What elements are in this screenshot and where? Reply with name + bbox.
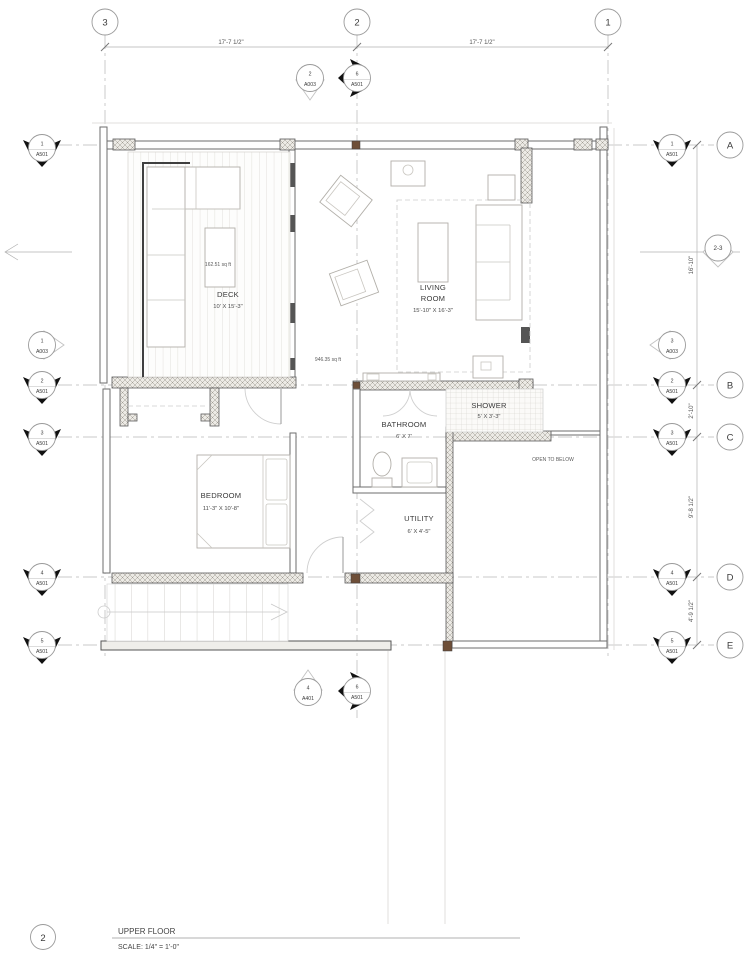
svg-text:2: 2 — [671, 379, 674, 385]
svg-text:3: 3 — [41, 431, 44, 437]
elevation-marker: 2A003 — [296, 65, 324, 101]
grid-bubble-1: 1 — [595, 9, 621, 35]
room-living: LIVING ROOM 15'-10" X 16'-3" 946.35 sq f… — [315, 161, 530, 378]
svg-text:A501: A501 — [666, 389, 678, 395]
toilet — [372, 452, 392, 487]
stove — [473, 356, 503, 378]
wall-bathroom-north — [353, 381, 533, 390]
deck-area-tag: 162.51 sq ft — [205, 262, 232, 268]
room-deck: 162.51 sq ft DECK 10' X 15'-3" — [128, 152, 290, 377]
bathroom-size: 6' X 7' — [396, 434, 412, 440]
deck-label: DECK — [217, 290, 239, 299]
shower-label: SHOWER — [471, 401, 507, 410]
title-block: 2 UPPER FLOOR SCALE: 1/4" = 1'-0" — [31, 925, 521, 952]
svg-text:A: A — [727, 141, 734, 152]
svg-text:6: 6 — [356, 685, 359, 691]
section-marker: 3A501 — [653, 424, 691, 457]
sheet-title: UPPER FLOOR — [118, 927, 176, 936]
floor-plan-drawing: 17'-7 1/2" 17'-7 1/2" 16'-10" 2'-10" 9'-… — [0, 0, 750, 957]
sofa — [476, 205, 522, 320]
bifold-door — [360, 499, 374, 543]
svg-text:5: 5 — [41, 639, 44, 645]
grid-bubble-2: 2 — [344, 9, 370, 35]
dim-right-bc: 2'-10" — [689, 403, 695, 418]
wall-bedroom-south — [112, 573, 303, 583]
console-table — [391, 161, 425, 186]
section-marker: 1A501 — [653, 135, 691, 168]
svg-text:D: D — [727, 573, 734, 584]
svg-text:A501: A501 — [36, 649, 48, 655]
svg-text:A501: A501 — [666, 152, 678, 158]
svg-text:4: 4 — [41, 571, 44, 577]
coffee-table — [418, 223, 448, 282]
svg-text:1: 1 — [605, 18, 610, 29]
armchair — [329, 260, 378, 306]
room-bedroom: BEDROOM 11'-3" X 10'-8" — [128, 389, 343, 573]
bedroom-label: BEDROOM — [201, 491, 242, 500]
grid-bubble-E: E — [717, 632, 743, 658]
wood-post — [352, 141, 360, 149]
detail-number: 2 — [40, 933, 45, 944]
svg-text:A501: A501 — [351, 82, 363, 88]
living-label-1: LIVING — [420, 283, 446, 292]
grid-bubble-3: 3 — [92, 9, 118, 35]
svg-text:A501: A501 — [36, 581, 48, 587]
grid-bubble-A: A — [717, 132, 743, 158]
section-marker: 4A501 — [23, 564, 61, 597]
stairs — [98, 584, 288, 641]
room-utility: UTILITY 6' X 4'-5" — [360, 499, 434, 543]
svg-text:1: 1 — [41, 339, 44, 345]
svg-text:A401: A401 — [302, 696, 314, 702]
grid-bubble-B: B — [717, 372, 743, 398]
svg-text:1: 1 — [671, 142, 674, 148]
wall-stair-south — [101, 641, 391, 650]
svg-text:A501: A501 — [36, 389, 48, 395]
side-table — [488, 175, 515, 200]
dim-right-cd: 9'-8 1/2" — [689, 496, 695, 518]
svg-text:4: 4 — [307, 686, 310, 692]
room-shower: SHOWER 5' X 3'-3" — [446, 389, 543, 432]
elevation-marker: 3A003 — [650, 331, 686, 359]
elevation-marker: 4A401 — [294, 670, 322, 706]
wall-bedroom-west — [103, 389, 110, 573]
svg-text:1: 1 — [41, 142, 44, 148]
section-marker: 5A501 — [23, 632, 61, 665]
svg-text:B: B — [727, 381, 733, 392]
utility-size: 6' X 4'-5" — [408, 529, 431, 535]
wall-deck-bedroom — [112, 377, 296, 388]
section-marker: 5A501 — [653, 632, 691, 665]
grid-bubble-D: D — [717, 564, 743, 590]
svg-text:A501: A501 — [36, 441, 48, 447]
wall-bedroom-east — [290, 433, 296, 573]
section-marker: 2A501 — [653, 372, 691, 405]
dim-right-ab: 16'-10" — [689, 256, 695, 275]
sheet-scale: SCALE: 1/4" = 1'-0" — [118, 944, 179, 951]
svg-text:2-3: 2-3 — [714, 245, 724, 252]
svg-text:3: 3 — [671, 339, 674, 345]
dim-right-de: 4'-9 1/2" — [689, 600, 695, 622]
wall-east — [600, 127, 607, 648]
floor-plan-sheet: 17'-7 1/2" 17'-7 1/2" 16'-10" 2'-10" 9'-… — [0, 0, 750, 957]
section-marker: 4A501 — [653, 564, 691, 597]
shower-size: 5' X 3'-3" — [478, 414, 501, 420]
svg-text:A003: A003 — [666, 349, 678, 355]
svg-text:A501: A501 — [36, 152, 48, 158]
vanity-counter — [363, 373, 440, 381]
svg-text:3: 3 — [102, 18, 107, 29]
section-marker: 1A501 — [23, 135, 61, 168]
svg-text:5: 5 — [671, 639, 674, 645]
utility-label: UTILITY — [404, 514, 434, 523]
svg-text:A003: A003 — [36, 349, 48, 355]
dim-top-right: 17'-7 1/2" — [469, 40, 494, 46]
wall-utility-east — [446, 427, 453, 645]
bedroom-size: 11'-3" X 10'-8" — [203, 506, 239, 512]
svg-text:A501: A501 — [666, 441, 678, 447]
svg-text:3: 3 — [671, 431, 674, 437]
deck-table — [205, 228, 235, 287]
elevation-marker: 1A003 — [29, 331, 65, 359]
dim-top-left: 17'-7 1/2" — [218, 40, 243, 46]
living-size: 15'-10" X 16'-3" — [413, 308, 453, 314]
svg-text:A501: A501 — [666, 581, 678, 587]
section-marker: 2A501 — [23, 372, 61, 405]
grid-bubble-C: C — [717, 424, 743, 450]
section-marker: 6A501 — [338, 59, 371, 97]
svg-text:2: 2 — [309, 72, 312, 78]
svg-text:C: C — [727, 433, 734, 444]
living-label-2: ROOM — [421, 294, 445, 303]
svg-text:A501: A501 — [351, 695, 363, 701]
section-marker: 6A501 — [338, 672, 371, 710]
bed — [197, 455, 290, 548]
svg-text:2: 2 — [41, 379, 44, 385]
bathroom-label: BATHROOM — [382, 420, 427, 429]
svg-text:6: 6 — [356, 72, 359, 78]
svg-text:4: 4 — [671, 571, 674, 577]
section-marker: 3A501 — [23, 424, 61, 457]
svg-text:A003: A003 — [304, 82, 316, 88]
svg-text:E: E — [727, 641, 733, 652]
open-to-below-label: OPEN TO BELOW — [532, 457, 574, 463]
floor-area-tag: 946.35 sq ft — [315, 357, 342, 363]
svg-text:2: 2 — [354, 18, 359, 29]
bathroom-sink — [402, 458, 437, 487]
deck-size: 10' X 15'-3" — [213, 304, 242, 310]
wall-west — [100, 127, 107, 383]
armchair — [320, 175, 372, 226]
svg-text:A501: A501 — [666, 649, 678, 655]
